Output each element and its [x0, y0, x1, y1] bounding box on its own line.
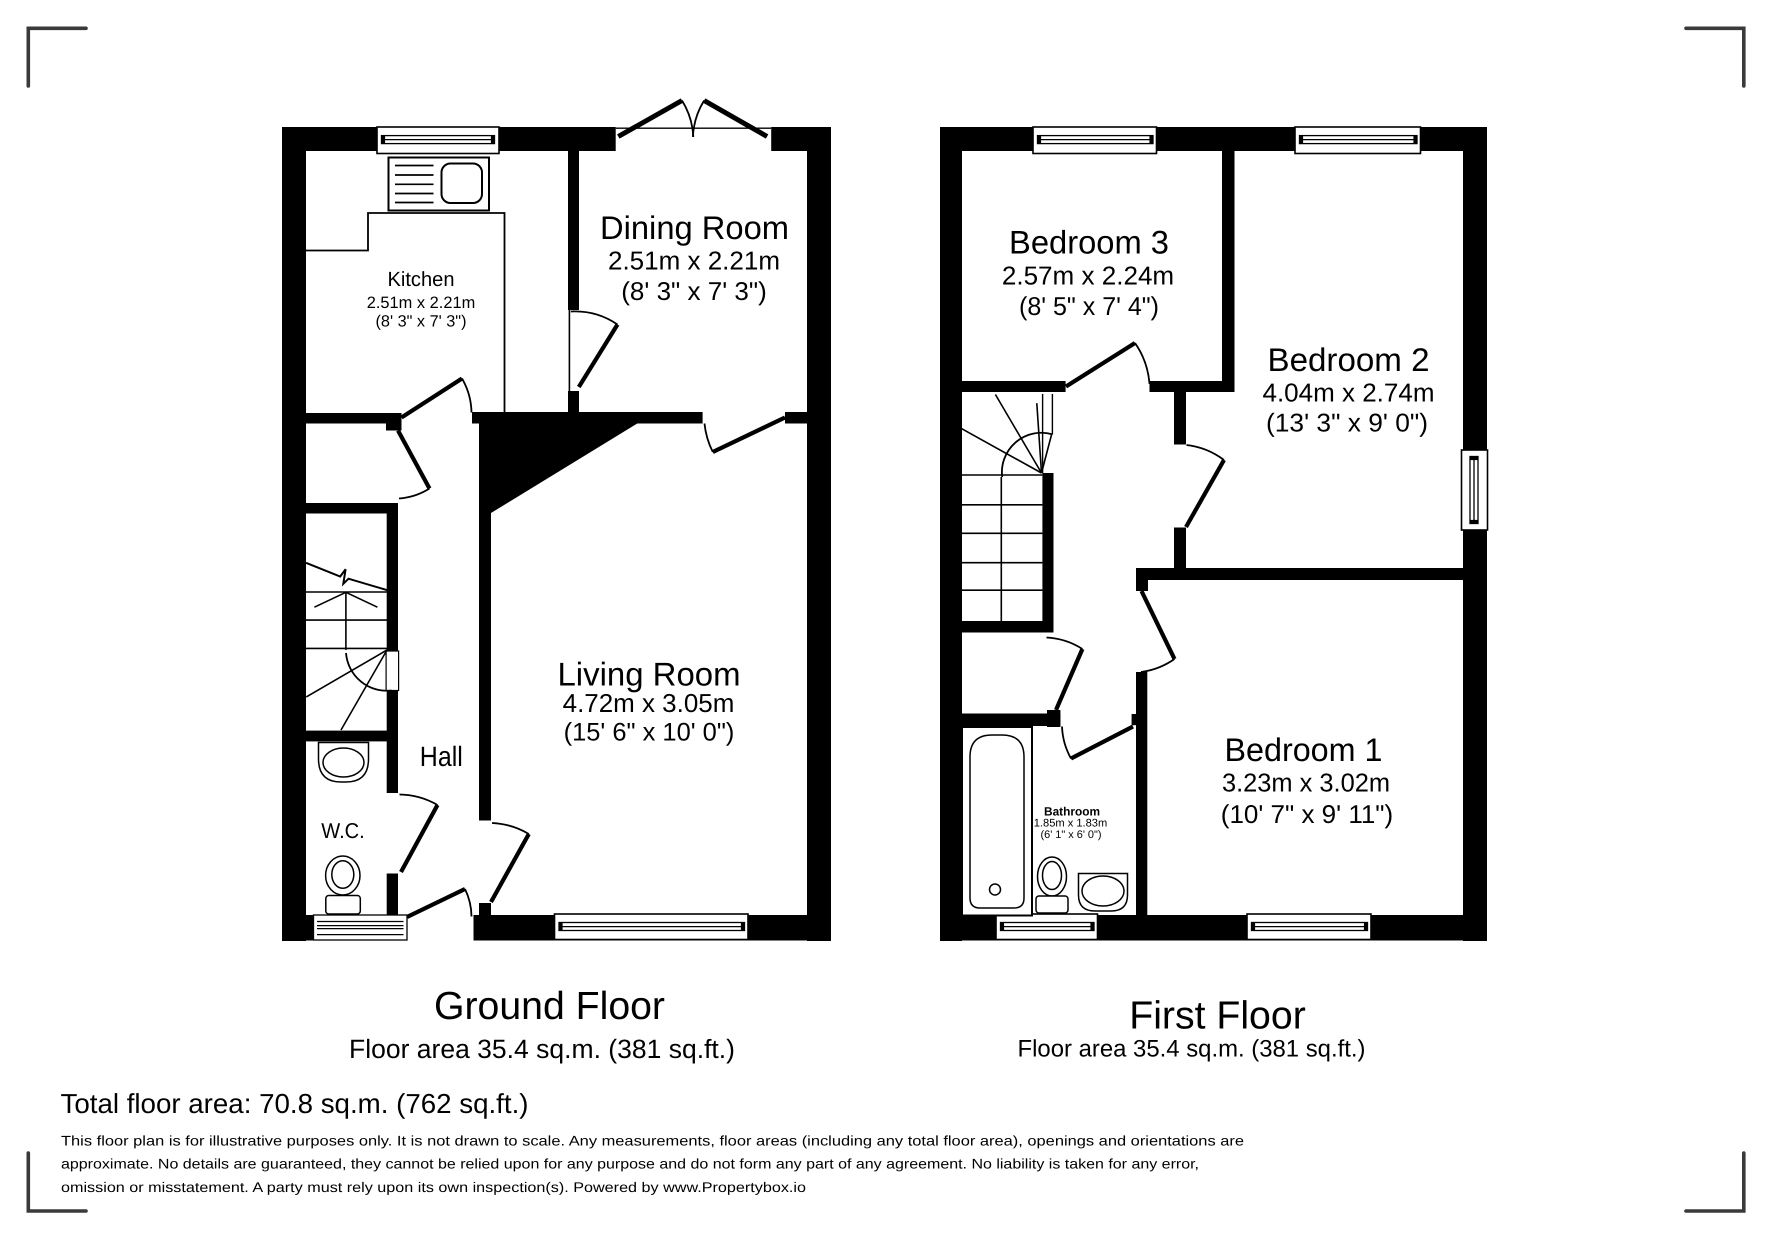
svg-text:Hall: Hall — [420, 741, 463, 772]
svg-text:2.57m x 2.24m: 2.57m x 2.24m — [1002, 261, 1174, 291]
svg-text:(8' 5" x 7' 4"): (8' 5" x 7' 4") — [1019, 293, 1159, 321]
svg-text:(15' 6" x 10' 0"): (15' 6" x 10' 0") — [564, 719, 735, 747]
svg-text:Ground Floor: Ground Floor — [434, 985, 665, 1028]
svg-text:omission or misstatement. A pa: omission or misstatement. A party must r… — [61, 1179, 806, 1195]
svg-text:3.23m x 3.02m: 3.23m x 3.02m — [1222, 768, 1390, 798]
svg-text:Floor area 35.4 sq.m. (381 sq.: Floor area 35.4 sq.m. (381 sq.ft.) — [349, 1034, 735, 1064]
svg-text:Dining Room: Dining Room — [600, 209, 789, 246]
svg-text:4.72m x 3.05m: 4.72m x 3.05m — [563, 688, 735, 718]
svg-text:W.C.: W.C. — [321, 819, 365, 843]
svg-text:This floor plan is for illustr: This floor plan is for illustrative purp… — [61, 1133, 1244, 1149]
svg-text:Bedroom 3: Bedroom 3 — [1009, 224, 1169, 261]
svg-text:Bedroom 1: Bedroom 1 — [1225, 731, 1383, 768]
svg-text:Total floor area: 70.8 sq.m. (: Total floor area: 70.8 sq.m. (762 sq.ft.… — [61, 1088, 529, 1119]
svg-text:(8' 3" x 7' 3"): (8' 3" x 7' 3") — [376, 313, 467, 331]
svg-text:(6' 1" x 6' 0"): (6' 1" x 6' 0") — [1041, 829, 1102, 841]
svg-text:(8' 3" x 7' 3"): (8' 3" x 7' 3") — [621, 278, 767, 306]
svg-text:Bathroom: Bathroom — [1044, 805, 1100, 819]
svg-text:2.51m x 2.21m: 2.51m x 2.21m — [367, 294, 476, 312]
svg-text:(10' 7" x 9' 11"): (10' 7" x 9' 11") — [1221, 801, 1393, 829]
svg-text:Living Room: Living Room — [558, 656, 741, 693]
svg-text:Kitchen: Kitchen — [388, 268, 455, 291]
svg-text:2.51m x 2.21m: 2.51m x 2.21m — [608, 246, 780, 276]
svg-text:Bedroom 2: Bedroom 2 — [1268, 341, 1430, 378]
svg-text:First Floor: First Floor — [1129, 995, 1306, 1038]
svg-text:4.04m x 2.74m: 4.04m x 2.74m — [1263, 378, 1435, 408]
svg-text:(13' 3" x 9' 0"): (13' 3" x 9' 0") — [1266, 410, 1428, 438]
svg-text:approximate. No details are gu: approximate. No details are guaranteed, … — [61, 1156, 1199, 1172]
svg-text:Floor area 35.4 sq.m. (381 sq.: Floor area 35.4 sq.m. (381 sq.ft.) — [1018, 1036, 1366, 1063]
svg-text:1.85m x 1.83m: 1.85m x 1.83m — [1034, 818, 1108, 830]
